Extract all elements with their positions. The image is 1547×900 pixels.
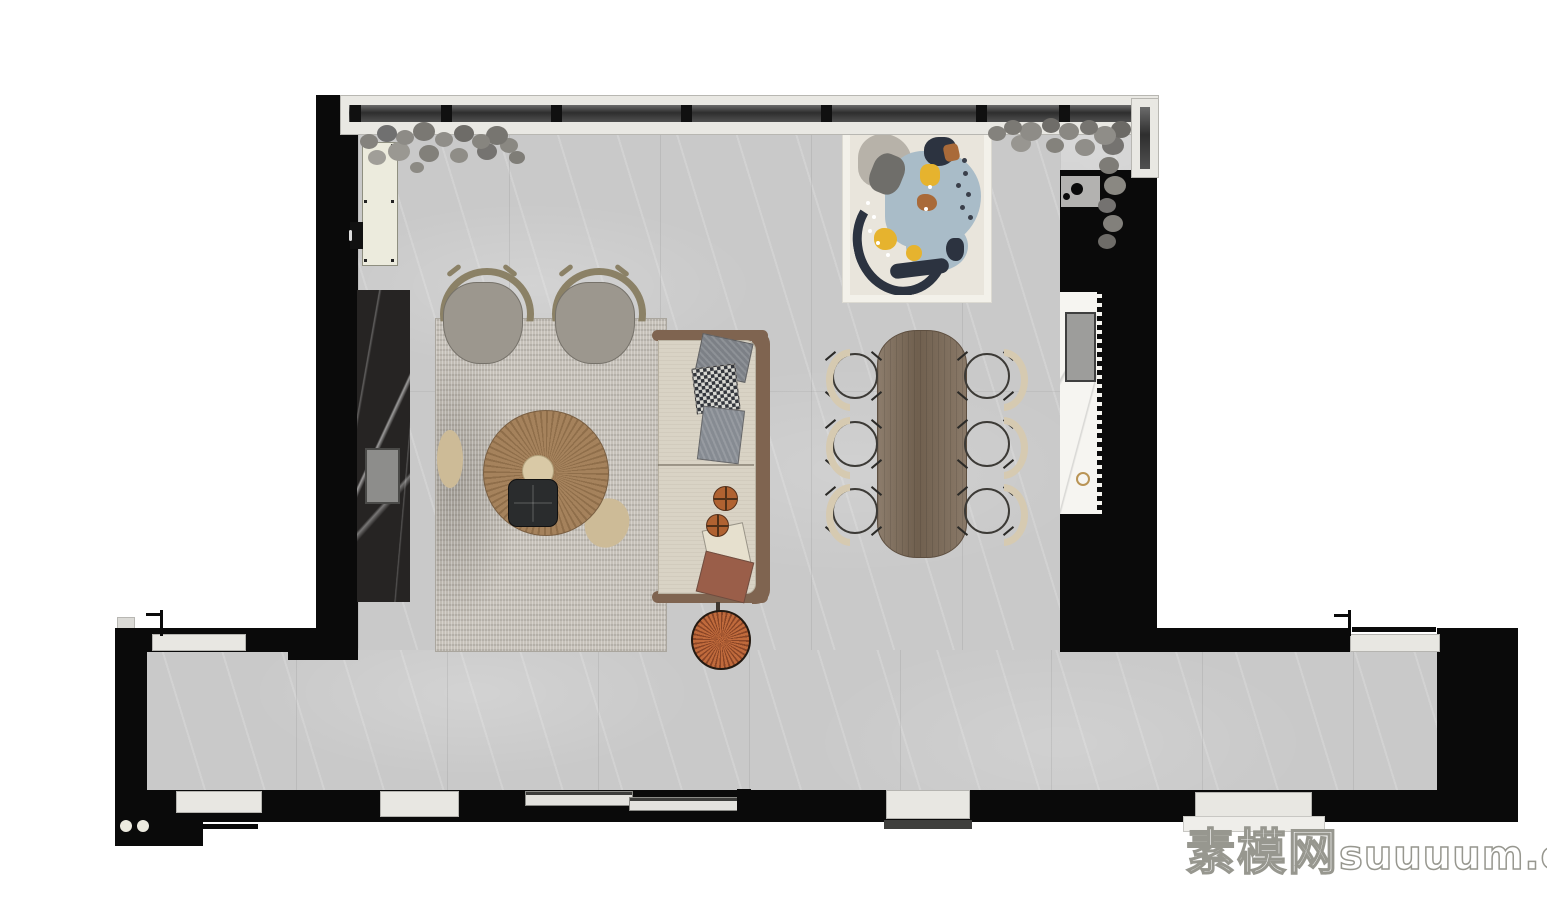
window-mullion	[551, 105, 562, 122]
dining-chair-2	[830, 419, 880, 469]
threshold-step-d	[884, 820, 972, 829]
door-hinge-mark	[146, 613, 163, 616]
floor-pouf	[691, 610, 751, 670]
dining-chair-4	[962, 351, 1012, 401]
dining-chair-1	[830, 351, 880, 401]
art-rust-1	[942, 142, 960, 161]
dining-chair-5	[962, 419, 1012, 469]
art-yellow-1	[920, 164, 940, 186]
column-dot-1	[120, 820, 132, 832]
entry-door-leaf-top-left	[158, 628, 238, 633]
opening-sill-e	[1195, 792, 1312, 819]
floor-plan-canvas: 素模网suuuum.com	[0, 0, 1547, 900]
sofa-cushion-divider	[658, 464, 754, 466]
dining-chair-3	[830, 486, 880, 536]
speaker-box	[350, 222, 363, 249]
art-yellow-2	[874, 228, 897, 250]
chair-ring	[964, 421, 1010, 467]
window-mullion	[681, 105, 692, 122]
watermark-site-name: 素模网	[1186, 822, 1339, 884]
foliage-blobs	[360, 134, 378, 149]
entry-door-leaf-top-right	[1352, 627, 1436, 632]
chair-seat	[555, 282, 635, 364]
faucet	[1076, 472, 1090, 486]
dining-table	[877, 330, 967, 558]
art-dark-dots	[963, 171, 968, 176]
sliding-door-panel-2	[629, 797, 741, 811]
sofa	[650, 328, 772, 618]
right-corner-wall	[1437, 628, 1518, 822]
lounge-chair-right	[550, 266, 638, 364]
window-mullion	[821, 105, 832, 122]
ball-pillow-2	[706, 514, 729, 537]
door-hinge-mark	[1334, 614, 1351, 617]
door-hinge-mark	[186, 838, 203, 841]
art-navy-blob-br	[946, 238, 963, 262]
serving-tray	[508, 479, 558, 527]
art-white-dots	[866, 201, 870, 205]
abstract-art-rug	[843, 120, 991, 302]
door-hinge-mark	[186, 822, 203, 825]
opening-sill-b	[380, 791, 459, 817]
sliding-door-jamb	[737, 789, 751, 811]
door-sill-bottom-a	[176, 791, 262, 813]
right-corner-window-glazing	[1140, 107, 1150, 169]
ball-pillow-1	[713, 486, 738, 511]
chair-ring	[964, 488, 1010, 534]
round-coffee-table	[483, 410, 609, 536]
hall-top-right-wall	[1155, 628, 1351, 652]
indoor-plant-left	[350, 112, 520, 212]
lounge-chair-left	[438, 266, 526, 364]
watermark-domain: suuuum.com	[1339, 833, 1547, 879]
door-hinge-mark	[146, 629, 163, 632]
entry-door-sill-top-right	[1350, 634, 1440, 652]
counter-serrated-edge	[1097, 292, 1102, 514]
pillow-gray-2	[697, 406, 745, 465]
art-canvas	[850, 127, 984, 295]
watermark: 素模网suuuum.com	[1186, 822, 1547, 884]
hallway-floor	[145, 650, 1453, 792]
sliding-door-panel-1	[525, 791, 633, 806]
floor-cushion-left	[437, 430, 463, 488]
tv-screen	[365, 448, 400, 504]
kitchen-sink	[1065, 312, 1096, 382]
entry-door-sill-top-left	[152, 634, 246, 651]
door-hinge-mark	[1334, 630, 1351, 633]
foliage-blobs	[988, 126, 1006, 141]
speaker-highlight	[349, 230, 352, 241]
column-dot-2	[137, 820, 149, 832]
tv-feature-wall	[357, 290, 410, 602]
chair-seat	[443, 282, 523, 364]
indoor-plant-right	[980, 108, 1140, 248]
opening-sill-d	[886, 790, 970, 819]
chair-ring	[964, 353, 1010, 399]
dining-chair-6	[962, 486, 1012, 536]
